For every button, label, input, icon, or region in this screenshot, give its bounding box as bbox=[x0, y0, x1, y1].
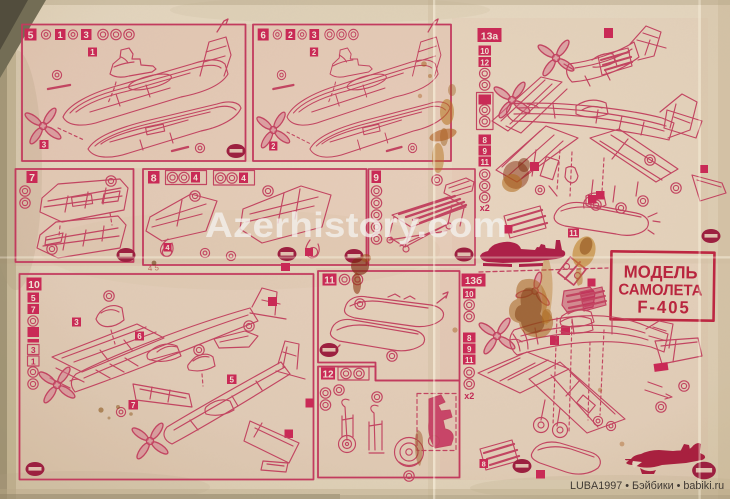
svg-text:3: 3 bbox=[31, 345, 36, 355]
svg-text:7: 7 bbox=[131, 401, 136, 410]
svg-text:6: 6 bbox=[261, 30, 267, 41]
svg-text:7: 7 bbox=[31, 304, 36, 314]
svg-text:x2: x2 bbox=[464, 391, 474, 401]
svg-text:10: 10 bbox=[465, 290, 474, 299]
svg-text:6: 6 bbox=[137, 332, 142, 341]
svg-text:1: 1 bbox=[90, 48, 95, 57]
svg-text:11: 11 bbox=[480, 158, 489, 167]
svg-text:12: 12 bbox=[480, 58, 489, 67]
svg-text:11: 11 bbox=[569, 229, 578, 238]
svg-text:8: 8 bbox=[467, 334, 472, 343]
svg-text:3: 3 bbox=[312, 29, 317, 39]
svg-text:1: 1 bbox=[31, 356, 36, 366]
svg-text:9: 9 bbox=[467, 345, 472, 354]
svg-text:5: 5 bbox=[28, 30, 34, 42]
svg-text:8: 8 bbox=[151, 172, 157, 184]
svg-text:10: 10 bbox=[480, 47, 489, 56]
svg-text:F-405: F-405 bbox=[637, 296, 691, 317]
svg-text:3: 3 bbox=[42, 141, 47, 150]
svg-text:4: 4 bbox=[193, 173, 198, 183]
svg-text:13а: 13а bbox=[481, 31, 499, 43]
svg-text:5: 5 bbox=[31, 293, 36, 303]
svg-text:8: 8 bbox=[482, 136, 487, 145]
svg-text:11: 11 bbox=[324, 276, 335, 287]
svg-text:2: 2 bbox=[288, 29, 293, 39]
svg-text:8: 8 bbox=[482, 460, 486, 469]
svg-text:1: 1 bbox=[58, 30, 64, 41]
svg-text:12: 12 bbox=[322, 370, 334, 381]
svg-text:2: 2 bbox=[271, 142, 275, 151]
svg-text:5: 5 bbox=[229, 375, 234, 384]
svg-text:9: 9 bbox=[482, 147, 487, 156]
svg-text:4: 4 bbox=[241, 173, 246, 183]
svg-text:2: 2 bbox=[312, 48, 316, 57]
svg-text:7: 7 bbox=[29, 172, 35, 184]
svg-text:13б: 13б bbox=[465, 275, 482, 287]
svg-text:3: 3 bbox=[84, 30, 89, 41]
svg-text:9: 9 bbox=[373, 173, 379, 184]
svg-text:10: 10 bbox=[28, 279, 40, 291]
svg-text:11: 11 bbox=[465, 356, 474, 365]
svg-text:МОДЕЛЬ: МОДЕЛЬ bbox=[624, 261, 698, 282]
svg-text:3: 3 bbox=[74, 318, 79, 327]
